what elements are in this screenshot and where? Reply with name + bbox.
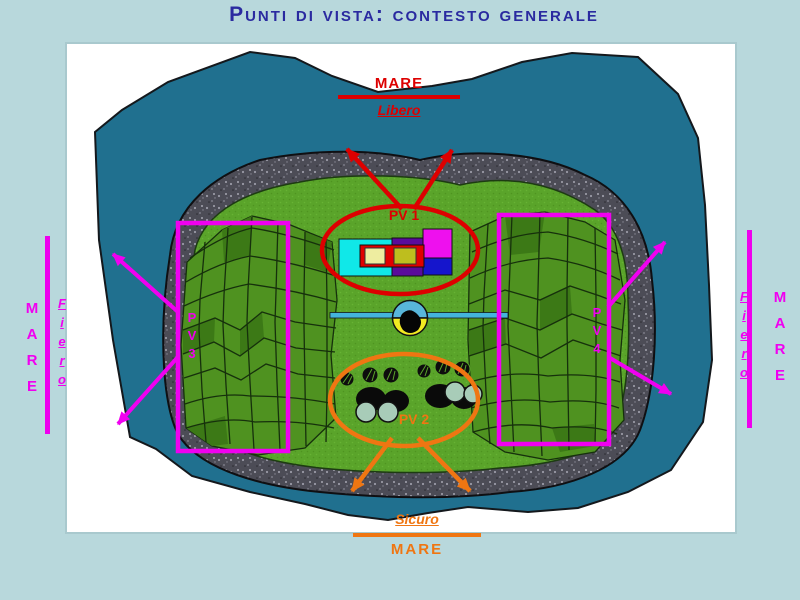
sea-label-right: MARE xyxy=(768,285,792,389)
top-divider-line xyxy=(338,95,460,99)
viewpoint-4-label: PV4 xyxy=(589,304,605,358)
viewpoint-2-label: PV 2 xyxy=(384,411,444,427)
sea-label-left: MARE xyxy=(20,296,44,400)
pond-circle xyxy=(393,301,428,336)
viewpoint-1-label: PV 1 xyxy=(378,207,430,223)
viewpoint-3-label: PV3 xyxy=(184,309,200,363)
sea-quality-bottom: Sicuro xyxy=(353,511,481,527)
sea-label-bottom: MARE xyxy=(353,541,481,558)
sea-quality-right: Fiero xyxy=(735,287,753,382)
left-divider-line xyxy=(45,236,50,434)
bottom-divider-line xyxy=(353,533,481,537)
sea-quality-top: Libero xyxy=(333,102,465,118)
sea-quality-left: Fiero xyxy=(53,294,71,389)
terrain-mesh-left xyxy=(181,216,337,455)
sea-label-top: MARE xyxy=(333,75,465,92)
